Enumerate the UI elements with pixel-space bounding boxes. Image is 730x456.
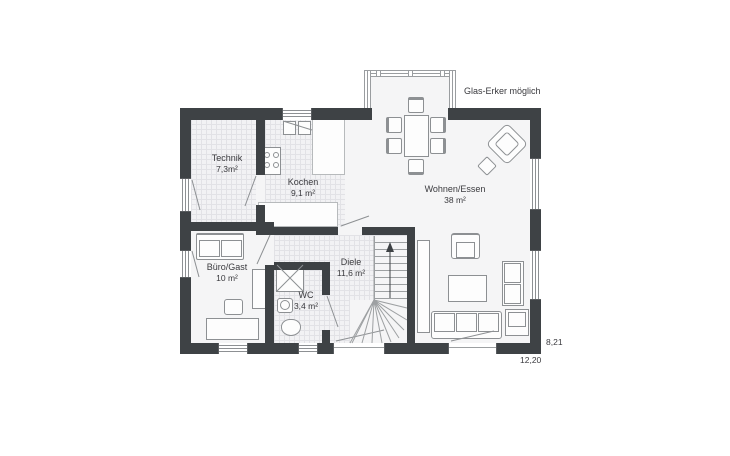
window-buero [180, 250, 191, 278]
dimension-height: 8,21 [546, 337, 563, 347]
wall-bottom [248, 343, 298, 354]
erker-mullion [408, 70, 413, 77]
dining-chair [386, 138, 402, 154]
wall-wc-right [322, 262, 330, 295]
room-label-wc: WC 3,4 m² [294, 289, 318, 313]
entrance-door [333, 343, 385, 354]
window-technik [180, 178, 191, 212]
desk-chair [224, 299, 243, 315]
sofa-cushion [199, 240, 220, 257]
toilet [281, 319, 301, 336]
room-label-buero: Büro/Gast 10 m² [207, 261, 248, 285]
sofa-cushion [504, 284, 521, 304]
wall-bottom [497, 343, 541, 354]
wall-technik-kochen [256, 119, 265, 175]
window-kitchen [282, 108, 312, 120]
room-area: 38 m² [425, 195, 486, 206]
sofa-cushion [434, 313, 455, 332]
sofa-cushion [456, 313, 477, 332]
wall-left [180, 212, 191, 250]
wall-bottom [385, 343, 448, 354]
wall-bottom [318, 343, 333, 354]
wall-left [180, 108, 191, 178]
washbasin-bowl [280, 300, 290, 310]
terrace-door [448, 343, 497, 354]
erker-mullion [376, 70, 381, 77]
wall-right [530, 210, 541, 250]
stairs-winder [350, 300, 407, 343]
wall-bottom [180, 343, 218, 354]
room-label-kochen: Kochen 9,1 m² [288, 176, 319, 200]
wall-kochen-diele [256, 227, 338, 235]
dining-chair [408, 97, 424, 113]
armchair-seat [456, 242, 475, 258]
room-name: Technik [212, 152, 243, 164]
kitchen-sink [298, 121, 311, 135]
stairs-flight [374, 236, 407, 300]
wall-buero-diele [265, 265, 274, 343]
wall-right [530, 108, 541, 158]
seat-cushion [508, 312, 526, 327]
wall-top [180, 108, 282, 120]
room-area: 3,4 m² [294, 301, 318, 312]
dining-chair [430, 138, 446, 154]
erker-annotation: Glas-Erker möglich [464, 86, 541, 96]
room-label-diele: Diele 11,6 m² [337, 256, 365, 280]
room-area: 7,3m² [212, 164, 243, 175]
desk [206, 318, 259, 340]
floor-plan: Technik 7,3m² Kochen 9,1 m² Wohnen/Essen… [0, 0, 730, 456]
wall-top [312, 108, 372, 120]
wall-wc-right [322, 330, 330, 343]
room-area: 10 m² [207, 273, 248, 284]
dining-chair [408, 159, 424, 175]
window-buero-bottom [218, 343, 248, 354]
wall-technik-buero [191, 222, 265, 231]
stove-burner [273, 152, 279, 158]
room-label-wohnen: Wohnen/Essen 38 m² [425, 183, 486, 207]
room-name: Wohnen/Essen [425, 183, 486, 195]
room-name: Büro/Gast [207, 261, 248, 273]
sofa-cushion [478, 313, 499, 332]
room-label-technik: Technik 7,3m² [212, 152, 243, 176]
dining-table [404, 115, 429, 157]
room-name: Diele [337, 256, 365, 268]
sofa-cushion [504, 263, 521, 283]
kitchen-counter-right [312, 119, 345, 175]
room-area: 9,1 m² [288, 188, 319, 199]
dimension-width: 12,20 [520, 355, 541, 365]
sideboard [417, 240, 430, 333]
wall-diele-wohnen [407, 227, 415, 343]
window-wc [298, 343, 318, 354]
dining-chair [430, 117, 446, 133]
room-name: Kochen [288, 176, 319, 188]
sofa-cushion [221, 240, 242, 257]
erker-mullion [440, 70, 445, 77]
stove-burner [273, 162, 279, 168]
room-name: WC [294, 289, 318, 301]
window-wohnen-right-bottom [530, 250, 541, 300]
coffee-table [448, 275, 487, 302]
dining-chair [386, 117, 402, 133]
wall-top [448, 108, 541, 120]
window-wohnen-right-top [530, 158, 541, 210]
room-area: 11,6 m² [337, 268, 365, 279]
kitchen-sink [283, 121, 296, 135]
